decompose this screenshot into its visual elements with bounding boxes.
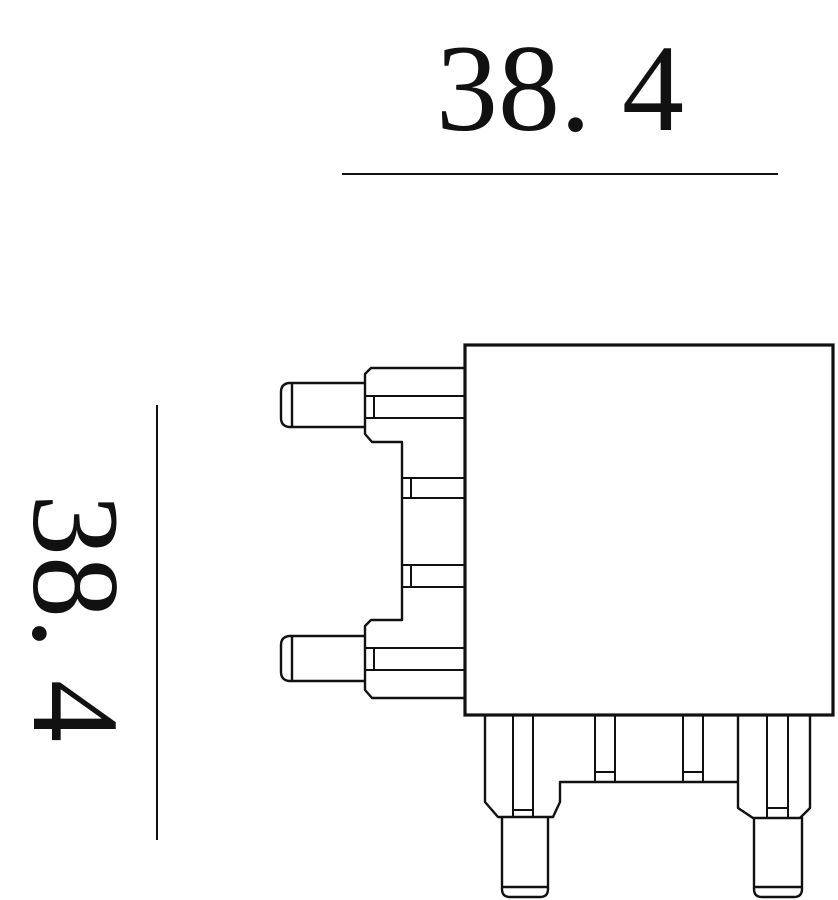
technical-drawing-canvas: 38. 4 38. 4 [0, 0, 838, 900]
left-foot-pin [502, 817, 548, 897]
body-square-outline [465, 345, 833, 715]
upper-pin-section-lines [365, 396, 465, 418]
middle-slot-upper-lines [402, 478, 465, 498]
center-pin-right [683, 715, 703, 781]
upper-pin [281, 383, 365, 427]
lower-pin [281, 636, 365, 681]
left-leg-pin-shank-lines [513, 715, 533, 817]
left-dimension-label: 38. 4 [7, 494, 144, 742]
right-leg-pin-shank-lines [767, 715, 788, 818]
drawing-page: 38. 4 38. 4 [0, 0, 838, 900]
lower-pin-section-lines [365, 648, 465, 670]
bottom-left-leg-outline [485, 715, 738, 817]
top-dimension-label: 38. 4 [436, 20, 684, 157]
middle-slot-lower-lines [402, 565, 465, 587]
bottom-right-leg-outline [738, 715, 810, 818]
center-pin-left [595, 715, 615, 781]
right-foot-pin [754, 817, 802, 897]
